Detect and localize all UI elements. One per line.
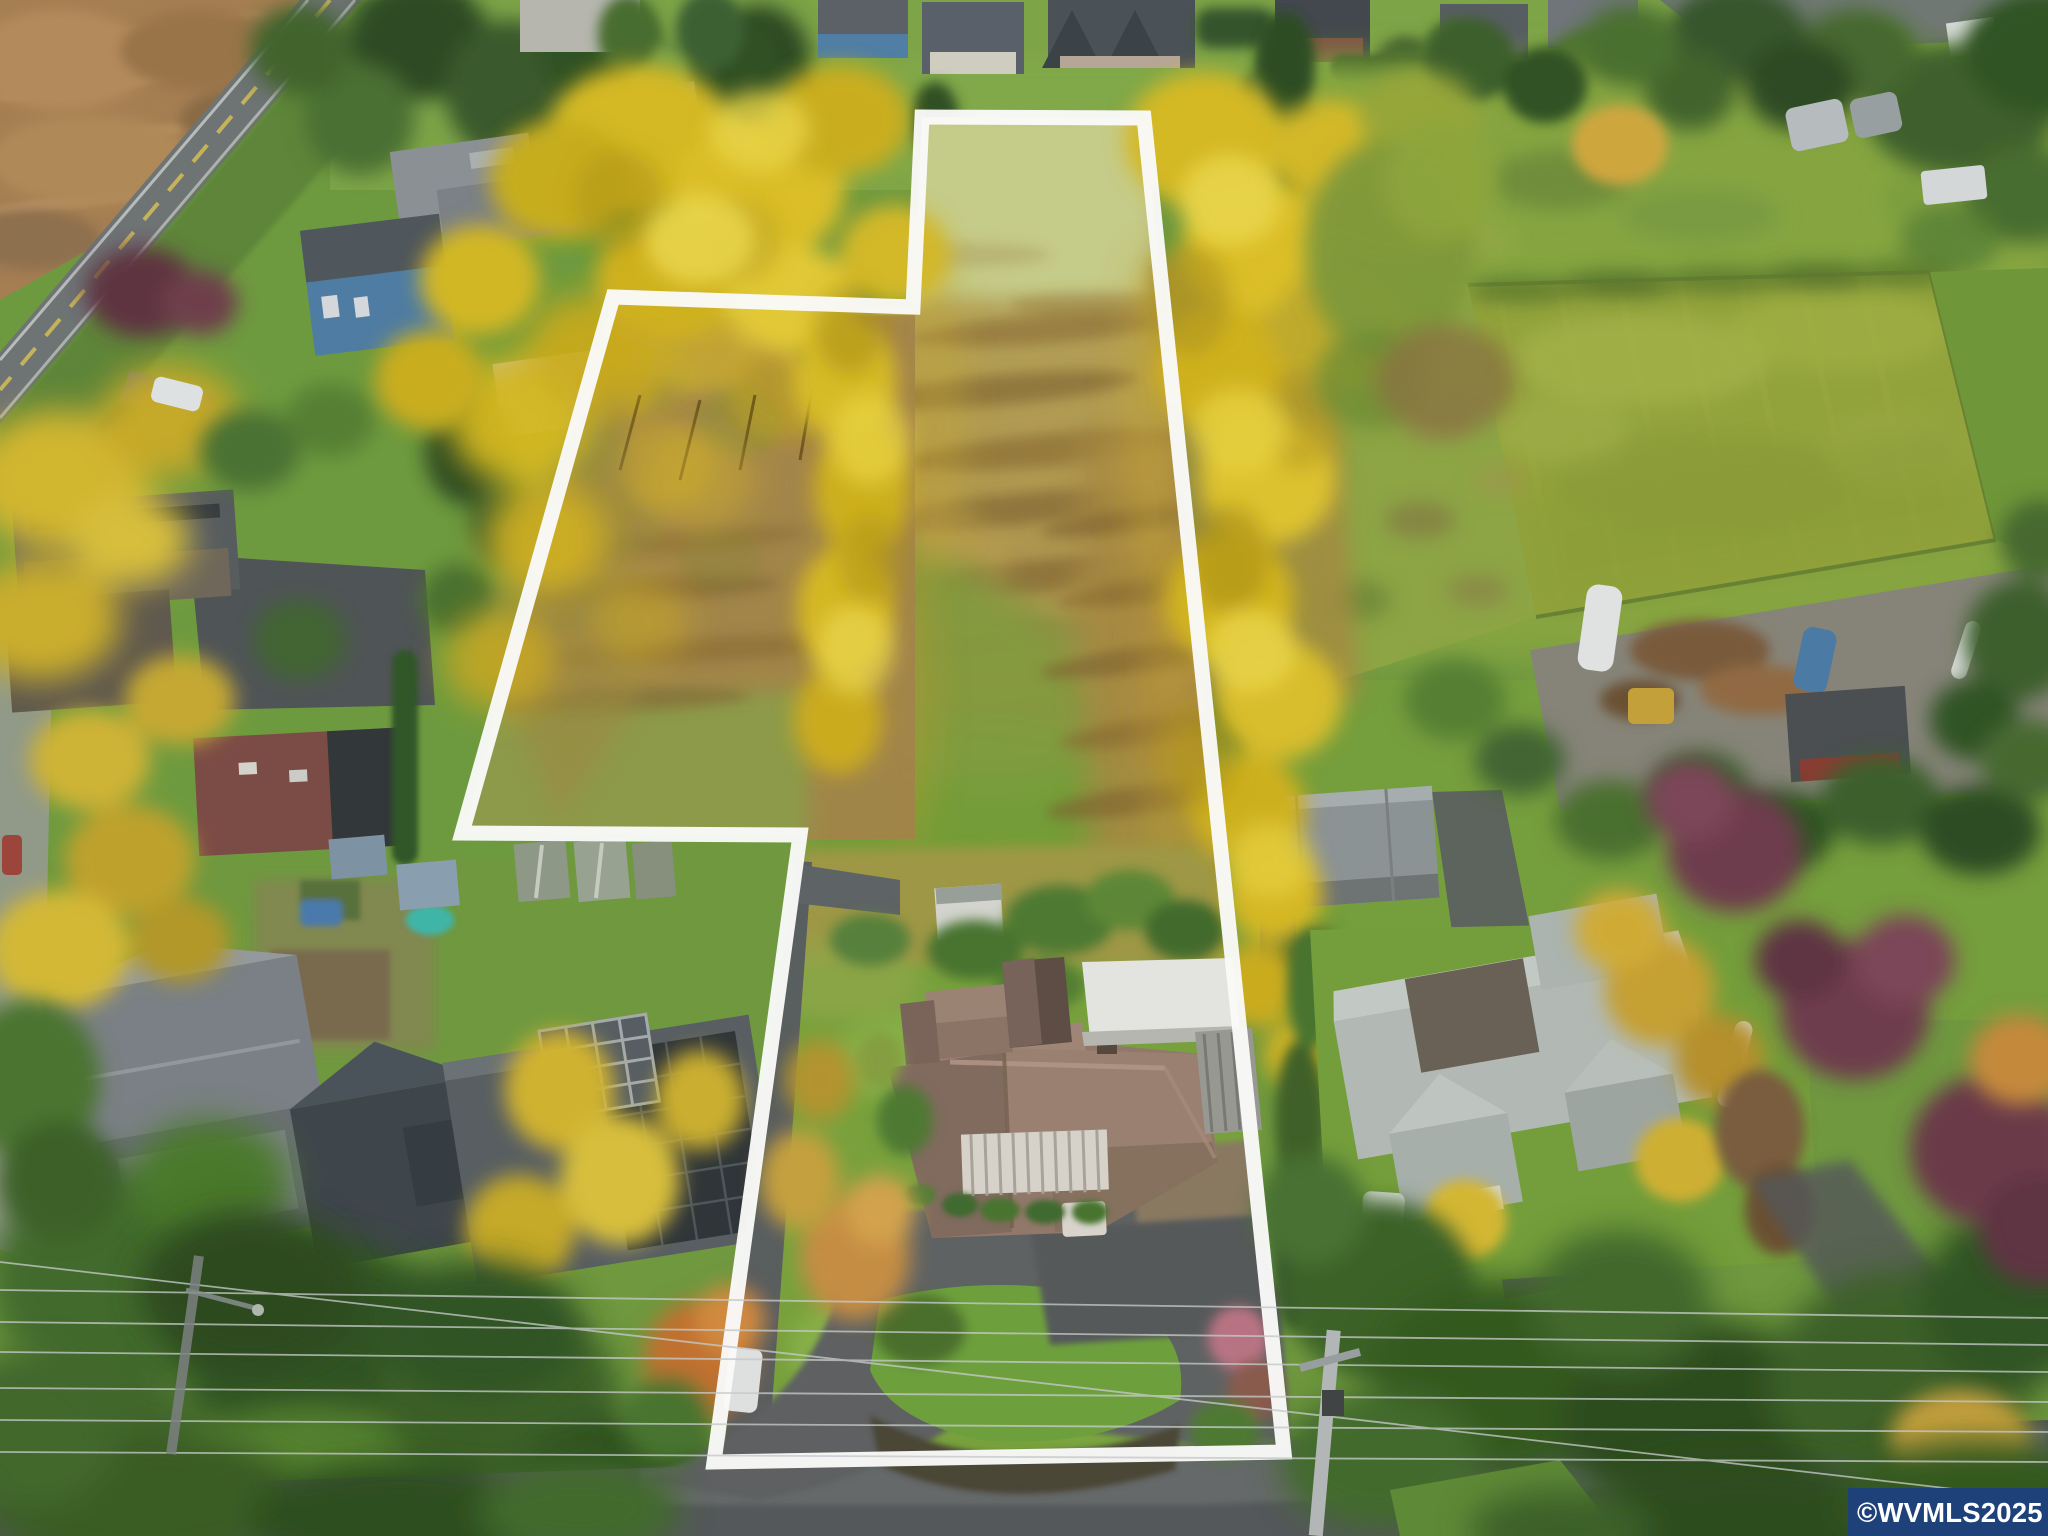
svg-text:©WVMLS2025: ©WVMLS2025	[1857, 1497, 2043, 1528]
